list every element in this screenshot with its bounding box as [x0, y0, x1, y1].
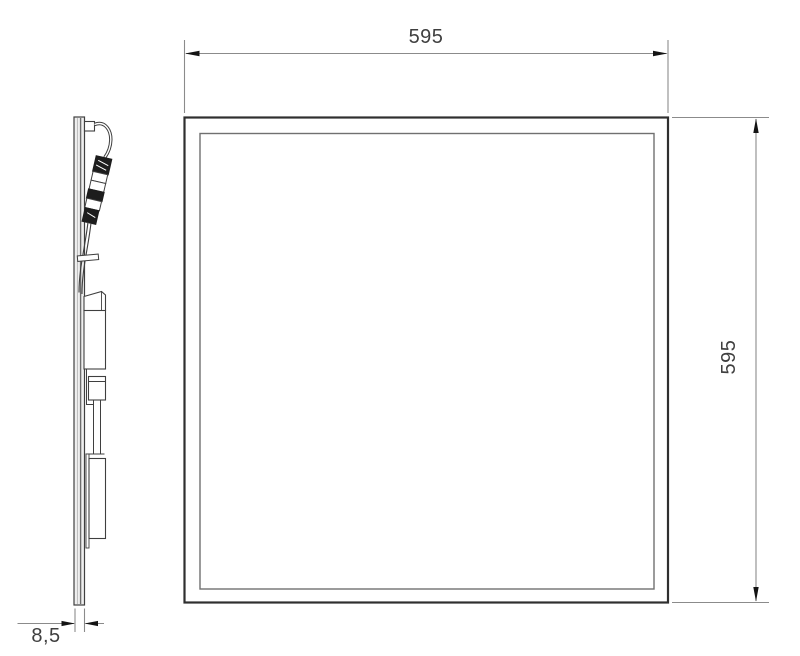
lower-driver-box — [89, 459, 106, 539]
panel-edge-profile — [74, 117, 85, 605]
arrowhead-up — [753, 119, 758, 134]
drawing-canvas — [0, 0, 800, 656]
driver-body — [84, 311, 106, 370]
driver-socket — [89, 377, 106, 401]
dimension-width — [185, 40, 669, 113]
driver-cap — [84, 292, 106, 311]
power-cable-core — [95, 124, 111, 158]
arrowhead-inward-left — [85, 621, 99, 626]
dimension-thickness-label: 8,5 — [6, 625, 86, 647]
panel-front-view — [185, 118, 669, 603]
arrowhead-right — [653, 51, 668, 56]
arrowhead-down — [753, 587, 758, 602]
cable-clip — [77, 254, 98, 261]
cable-entry-stub — [85, 122, 95, 132]
panel-side-view — [74, 117, 112, 605]
dimension-width-label: 595 — [376, 26, 476, 48]
cable-connector — [81, 156, 112, 225]
arrowhead-left — [185, 51, 200, 56]
panel-outer-frame — [185, 118, 669, 603]
dimension-height-label: 595 — [718, 317, 740, 397]
connector-black-segment — [82, 208, 99, 225]
technical-drawing: 595 595 8,5 — [0, 0, 800, 656]
